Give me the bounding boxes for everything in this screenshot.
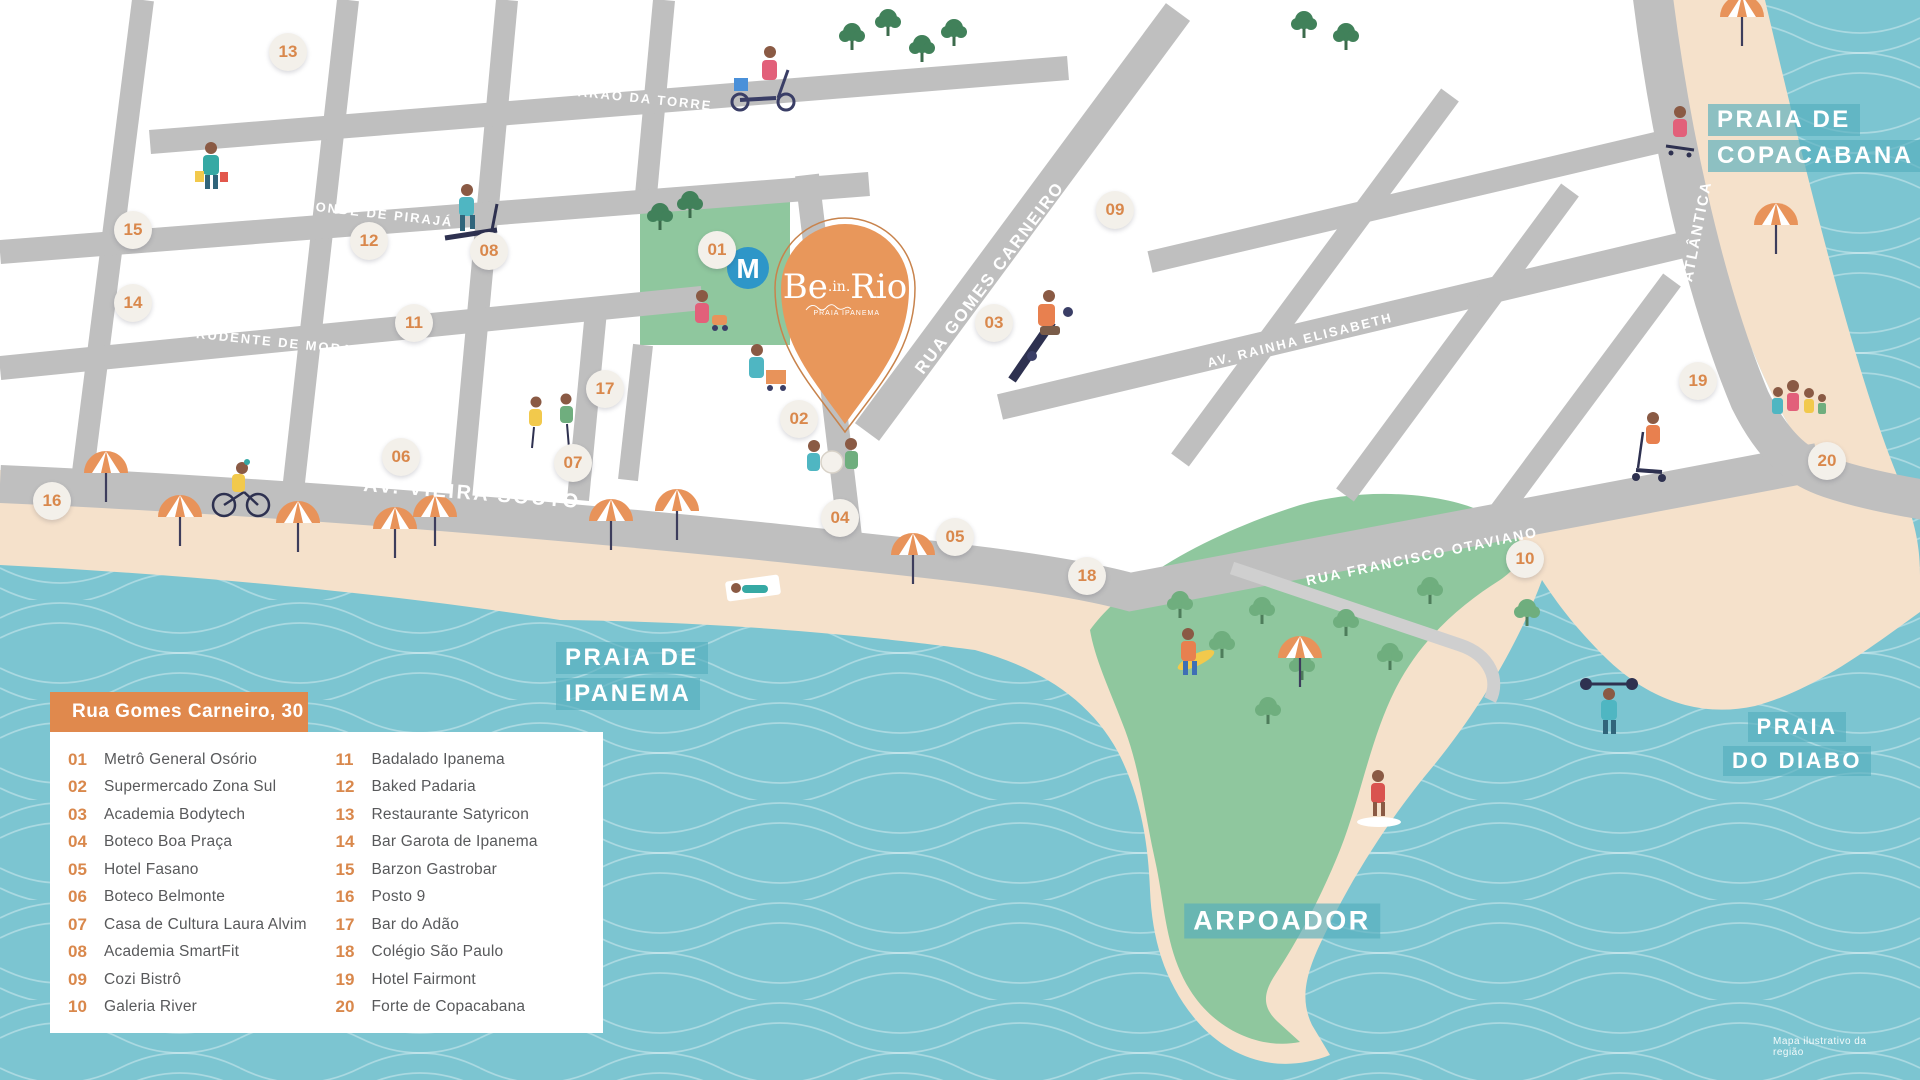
map-marker-07: 07 <box>554 444 592 482</box>
legend-item-label: Hotel Fairmont <box>372 971 476 989</box>
legend-item: 03Academia Bodytech <box>68 801 336 829</box>
marker-number: 08 <box>480 241 499 261</box>
marker-number: 13 <box>279 42 298 62</box>
legend-item-label: Bar Garota de Ipanema <box>372 833 538 851</box>
marker-number: 18 <box>1078 566 1097 586</box>
legend-title: Rua Gomes Carneiro, 30 <box>50 692 308 732</box>
legend-item: 08Academia SmartFit <box>68 939 336 967</box>
legend-item-label: Barzon Gastrobar <box>372 861 498 879</box>
marker-number: 06 <box>392 447 411 467</box>
legend-item: 10Galeria River <box>68 994 336 1022</box>
legend-item: 05Hotel Fasano <box>68 856 336 884</box>
legend-item-label: Galeria River <box>104 998 197 1016</box>
map-marker-08: 08 <box>470 232 508 270</box>
marker-number: 15 <box>124 220 143 240</box>
map-marker-11: 11 <box>395 304 433 342</box>
legend-item-label: Badalado Ipanema <box>372 751 505 769</box>
map-marker-01: 01 <box>698 231 736 269</box>
legend-item-label: Supermercado Zona Sul <box>104 778 276 796</box>
legend-item-number: 10 <box>68 997 104 1017</box>
marker-number: 17 <box>596 379 615 399</box>
legend-item-label: Academia SmartFit <box>104 943 239 961</box>
legend-item-number: 02 <box>68 777 104 797</box>
map-marker-12: 12 <box>350 222 388 260</box>
legend-panel: 01Metrô General Osório 02Supermercado Zo… <box>50 732 603 1033</box>
map-marker-04: 04 <box>821 499 859 537</box>
legend-item: 01Metrô General Osório <box>68 746 336 774</box>
map-marker-10: 10 <box>1506 540 1544 578</box>
map-marker-05: 05 <box>936 518 974 556</box>
marker-number: 12 <box>360 231 379 251</box>
legend-item-number: 06 <box>68 887 104 907</box>
map-marker-14: 14 <box>114 284 152 322</box>
marker-number: 16 <box>43 491 62 511</box>
legend-item-label: Colégio São Paulo <box>372 943 504 961</box>
map-marker-09: 09 <box>1096 191 1134 229</box>
label-praia-de-copacabana: PRAIA DE COPACABANA <box>1708 102 1920 174</box>
legend-item-label: Bar do Adão <box>372 916 460 934</box>
legend-item-number: 12 <box>336 777 372 797</box>
legend-item-number: 03 <box>68 805 104 825</box>
legend-item-label: Boteco Belmonte <box>104 888 225 906</box>
legend-item-label: Posto 9 <box>372 888 426 906</box>
legend-item-label: Boteco Boa Praça <box>104 833 232 851</box>
marker-number: 11 <box>405 313 423 333</box>
map-marker-03: 03 <box>975 304 1013 342</box>
legend-item-label: Forte de Copacabana <box>372 998 526 1016</box>
label-praia-de-ipanema: PRAIA DE IPANEMA <box>556 640 708 712</box>
legend-item-number: 16 <box>336 887 372 907</box>
marker-number: 10 <box>1516 549 1535 569</box>
legend-item-number: 04 <box>68 832 104 852</box>
marker-number: 05 <box>946 527 965 547</box>
legend-item: 06Boteco Belmonte <box>68 884 336 912</box>
legend-column-right: 11Badalado Ipanema 12Baked Padaria 13Res… <box>336 746 604 1021</box>
legend-item-number: 14 <box>336 832 372 852</box>
legend-item: 14Bar Garota de Ipanema <box>336 829 604 857</box>
legend-item: 04Boteco Boa Praça <box>68 829 336 857</box>
legend-item-number: 07 <box>68 915 104 935</box>
marker-number: 04 <box>831 508 850 528</box>
legend-item-number: 13 <box>336 805 372 825</box>
legend-item: 02Supermercado Zona Sul <box>68 774 336 802</box>
legend-item-number: 17 <box>336 915 372 935</box>
legend-item-number: 15 <box>336 860 372 880</box>
marker-number: 19 <box>1689 371 1708 391</box>
label-praia-do-diabo: PRAIA DO DIABO <box>1723 710 1871 778</box>
legend-item-number: 18 <box>336 942 372 962</box>
legend-item: 07Casa de Cultura Laura Alvim <box>68 911 336 939</box>
marker-number: 03 <box>985 313 1004 333</box>
pin-tagline: PRAIA IPANEMA <box>813 310 880 317</box>
marker-number: 01 <box>708 240 727 260</box>
legend-item: 16Posto 9 <box>336 884 604 912</box>
legend-item-number: 01 <box>68 750 104 770</box>
marker-number: 09 <box>1106 200 1125 220</box>
marker-number: 07 <box>564 453 583 473</box>
legend-item: 15Barzon Gastrobar <box>336 856 604 884</box>
legend-item-label: Hotel Fasano <box>104 861 199 879</box>
legend-item-label: Restaurante Satyricon <box>372 806 530 824</box>
legend-item-number: 11 <box>336 750 372 770</box>
map-marker-17: 17 <box>586 370 624 408</box>
marker-number: 14 <box>124 293 143 313</box>
map-marker-19: 19 <box>1679 362 1717 400</box>
legend-item-number: 09 <box>68 970 104 990</box>
map-marker-20: 20 <box>1808 442 1846 480</box>
legend-item-label: Cozi Bistrô <box>104 971 181 989</box>
map-marker-18: 18 <box>1068 557 1106 595</box>
legend-item-label: Baked Padaria <box>372 778 476 796</box>
label-arpoador: ARPOADOR <box>1184 902 1380 941</box>
map-disclaimer: Mapa ilustrativo da região <box>1773 1036 1871 1058</box>
map-marker-15: 15 <box>114 211 152 249</box>
legend-item-number: 08 <box>68 942 104 962</box>
map-marker-02: 02 <box>780 400 818 438</box>
legend-item: 12Baked Padaria <box>336 774 604 802</box>
legend-item: 20Forte de Copacabana <box>336 994 604 1022</box>
legend-item: 11Badalado Ipanema <box>336 746 604 774</box>
map-marker-13: 13 <box>269 33 307 71</box>
legend-item: 18Colégio São Paulo <box>336 939 604 967</box>
legend-item-number: 20 <box>336 997 372 1017</box>
marker-number: 20 <box>1818 451 1837 471</box>
legend-item: 19Hotel Fairmont <box>336 966 604 994</box>
marker-number: 02 <box>790 409 809 429</box>
map-canvas: M Be.in.Rio PRAIA IPANEMA RUA BARÃO DA T… <box>0 0 1920 1080</box>
legend-item-label: Metrô General Osório <box>104 751 257 769</box>
legend-column-left: 01Metrô General Osório 02Supermercado Zo… <box>68 746 336 1021</box>
map-marker-16: 16 <box>33 482 71 520</box>
legend-item: 09Cozi Bistrô <box>68 966 336 994</box>
legend-item-number: 19 <box>336 970 372 990</box>
legend-item-label: Academia Bodytech <box>104 806 245 824</box>
legend-item: 17Bar do Adão <box>336 911 604 939</box>
legend-item: 13Restaurante Satyricon <box>336 801 604 829</box>
legend-item-number: 05 <box>68 860 104 880</box>
legend-item-label: Casa de Cultura Laura Alvim <box>104 916 307 934</box>
map-marker-06: 06 <box>382 438 420 476</box>
metro-letter: M <box>736 253 759 284</box>
